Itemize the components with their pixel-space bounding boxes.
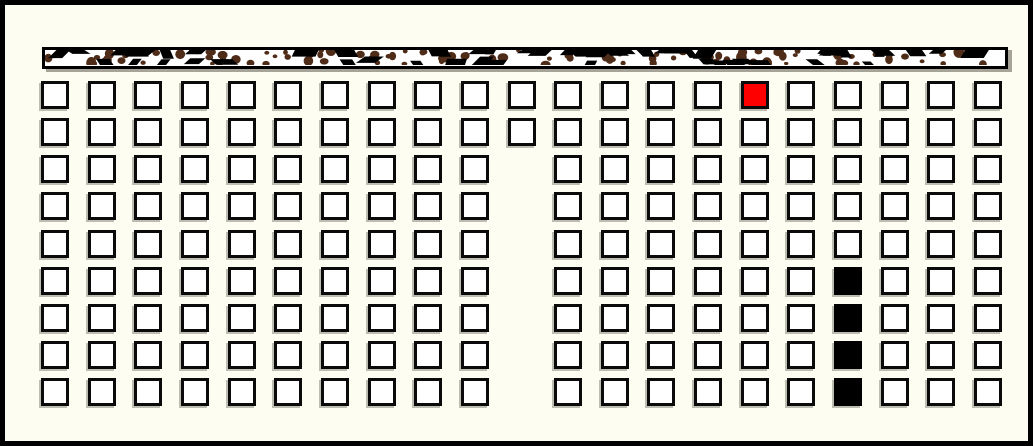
grid-cell[interactable] [927, 341, 955, 369]
grid-cell[interactable] [787, 81, 815, 109]
grid-cell[interactable] [741, 378, 769, 406]
grid-cell[interactable] [41, 304, 69, 332]
grid-cell[interactable] [554, 118, 582, 146]
grid-cell[interactable] [554, 267, 582, 295]
grid-cell[interactable] [228, 341, 256, 369]
grid-cell[interactable] [647, 378, 675, 406]
grid-cell[interactable] [461, 304, 489, 332]
textured-top-bar [42, 47, 1008, 69]
grid-cell[interactable] [647, 192, 675, 220]
grid-cell[interactable] [974, 118, 1002, 146]
grid-cell[interactable] [134, 341, 162, 369]
grid-cell[interactable] [414, 118, 442, 146]
grid-cell[interactable] [461, 267, 489, 295]
grid-cell[interactable] [134, 267, 162, 295]
grid-cell[interactable] [694, 118, 722, 146]
grid-cell[interactable] [601, 230, 629, 258]
grid-cell[interactable] [88, 378, 116, 406]
grid-cell[interactable] [787, 304, 815, 332]
grid-cell[interactable] [88, 155, 116, 183]
grid-cell[interactable] [694, 267, 722, 295]
grid-cell[interactable] [694, 192, 722, 220]
grid-cell[interactable] [228, 118, 256, 146]
grid-cell[interactable] [927, 230, 955, 258]
grid-cell[interactable] [881, 192, 909, 220]
grid-cell[interactable] [41, 267, 69, 295]
grid-cell[interactable] [414, 230, 442, 258]
grid-cell[interactable] [974, 81, 1002, 109]
grid-cell[interactable] [554, 304, 582, 332]
grid-cell[interactable] [927, 304, 955, 332]
grid-cell[interactable] [881, 267, 909, 295]
grid-cell-black[interactable] [834, 267, 862, 295]
grid-cell[interactable] [974, 155, 1002, 183]
grid-cell[interactable] [321, 230, 349, 258]
grid-cell[interactable] [554, 230, 582, 258]
grid-cell[interactable] [787, 230, 815, 258]
grid-cell[interactable] [228, 304, 256, 332]
grid-cell[interactable] [274, 192, 302, 220]
grid-cell[interactable] [414, 81, 442, 109]
grid-cell[interactable] [228, 192, 256, 220]
grid-cell[interactable] [368, 230, 396, 258]
grid-cell[interactable] [834, 192, 862, 220]
grid-cell[interactable] [88, 81, 116, 109]
grid-cell[interactable] [787, 341, 815, 369]
grid-cell[interactable] [461, 118, 489, 146]
grid-cell[interactable] [274, 341, 302, 369]
grid-cell[interactable] [974, 304, 1002, 332]
grid-cell[interactable] [321, 378, 349, 406]
grid-cell[interactable] [88, 230, 116, 258]
grid-cell[interactable] [228, 378, 256, 406]
grid-cell[interactable] [41, 81, 69, 109]
grid-cell[interactable] [181, 81, 209, 109]
grid-cell[interactable] [787, 378, 815, 406]
grid-cell[interactable] [601, 192, 629, 220]
grid-cell[interactable] [274, 155, 302, 183]
grid-cell[interactable] [647, 267, 675, 295]
grid-cell[interactable] [134, 155, 162, 183]
grid-cell[interactable] [181, 155, 209, 183]
grid-cell[interactable] [368, 304, 396, 332]
grid-cell[interactable] [554, 155, 582, 183]
grid-cell-black[interactable] [834, 378, 862, 406]
grid-cell[interactable] [181, 341, 209, 369]
grid-cell[interactable] [834, 118, 862, 146]
grid-cell[interactable] [647, 230, 675, 258]
grid-cell[interactable] [321, 304, 349, 332]
grid-cell[interactable] [974, 230, 1002, 258]
grid-cell[interactable] [741, 304, 769, 332]
grid-cell[interactable] [647, 118, 675, 146]
grid-cell[interactable] [694, 230, 722, 258]
grid-cell[interactable] [741, 230, 769, 258]
grid-cell[interactable] [228, 81, 256, 109]
grid-cell[interactable] [508, 81, 536, 109]
grid-cell[interactable] [554, 341, 582, 369]
noise-pattern [45, 50, 1004, 65]
grid-cell[interactable] [368, 155, 396, 183]
grid-cell[interactable] [274, 267, 302, 295]
grid-cell-red[interactable] [741, 81, 769, 109]
grid-cell[interactable] [927, 81, 955, 109]
grid-cell[interactable] [741, 192, 769, 220]
grid-cell[interactable] [974, 192, 1002, 220]
grid-cell[interactable] [461, 341, 489, 369]
grid-cell[interactable] [134, 118, 162, 146]
grid-cell[interactable] [368, 378, 396, 406]
grid-cell[interactable] [927, 155, 955, 183]
grid-cell[interactable] [88, 304, 116, 332]
grid-cell[interactable] [414, 267, 442, 295]
grid-cell[interactable] [274, 304, 302, 332]
grid-cell[interactable] [647, 81, 675, 109]
grid-cell[interactable] [601, 267, 629, 295]
grid-cell[interactable] [414, 304, 442, 332]
grid-cell[interactable] [181, 118, 209, 146]
grid-cell[interactable] [368, 192, 396, 220]
grid-cell[interactable] [787, 155, 815, 183]
grid-cell[interactable] [787, 267, 815, 295]
grid-cell[interactable] [134, 81, 162, 109]
grid-cell[interactable] [787, 192, 815, 220]
grid-cell[interactable] [368, 267, 396, 295]
grid-cell[interactable] [461, 230, 489, 258]
grid-cell[interactable] [834, 81, 862, 109]
grid-cell[interactable] [321, 118, 349, 146]
grid-cell[interactable] [508, 118, 536, 146]
grid-cell[interactable] [414, 341, 442, 369]
grid-cell[interactable] [694, 81, 722, 109]
grid-cell[interactable] [927, 118, 955, 146]
grid-cell[interactable] [601, 118, 629, 146]
grid-cell[interactable] [321, 267, 349, 295]
grid-cell[interactable] [41, 118, 69, 146]
grid-cell[interactable] [647, 155, 675, 183]
grid-cell[interactable] [228, 267, 256, 295]
grid-cell[interactable] [461, 192, 489, 220]
grid-cell[interactable] [741, 118, 769, 146]
grid-cell[interactable] [461, 81, 489, 109]
grid-cell[interactable] [647, 341, 675, 369]
grid-cell[interactable] [41, 230, 69, 258]
grid-cell[interactable] [601, 304, 629, 332]
grid-cell[interactable] [228, 230, 256, 258]
grid-cell[interactable] [414, 378, 442, 406]
grid-cell[interactable] [741, 155, 769, 183]
grid-cell[interactable] [601, 378, 629, 406]
grid-cell[interactable] [881, 230, 909, 258]
grid-cell[interactable] [694, 155, 722, 183]
grid-cell[interactable] [694, 341, 722, 369]
grid-cell[interactable] [88, 118, 116, 146]
grid-cell[interactable] [414, 192, 442, 220]
grid-cell[interactable] [181, 267, 209, 295]
grid-cell[interactable] [554, 81, 582, 109]
grid-cell[interactable] [181, 192, 209, 220]
grid-cell[interactable] [134, 304, 162, 332]
grid-cell[interactable] [461, 155, 489, 183]
grid-cell[interactable] [974, 378, 1002, 406]
grid-cell[interactable] [554, 192, 582, 220]
grid-cell[interactable] [228, 155, 256, 183]
grid-cell[interactable] [787, 118, 815, 146]
grid-cell[interactable] [321, 155, 349, 183]
grid-cell[interactable] [927, 192, 955, 220]
grid-cell[interactable] [321, 81, 349, 109]
grid-cell[interactable] [927, 378, 955, 406]
grid-cell[interactable] [181, 230, 209, 258]
grid-cell[interactable] [321, 341, 349, 369]
grid-cell[interactable] [88, 341, 116, 369]
grid-cell[interactable] [41, 341, 69, 369]
grid-cell[interactable] [88, 192, 116, 220]
grid-cell[interactable] [694, 378, 722, 406]
grid-cell[interactable] [927, 267, 955, 295]
grid-cell[interactable] [461, 378, 489, 406]
grid-cell[interactable] [414, 155, 442, 183]
grid-cell[interactable] [368, 118, 396, 146]
grid-cell[interactable] [368, 341, 396, 369]
grid-cell-black[interactable] [834, 304, 862, 332]
grid-cell[interactable] [834, 155, 862, 183]
app-canvas [0, 0, 1033, 446]
grid-cell[interactable] [601, 341, 629, 369]
grid-cell[interactable] [694, 304, 722, 332]
grid-cell[interactable] [134, 192, 162, 220]
grid-cell[interactable] [134, 230, 162, 258]
grid-cell[interactable] [647, 304, 675, 332]
grid-cell[interactable] [974, 341, 1002, 369]
grid-cell[interactable] [881, 341, 909, 369]
grid-cell[interactable] [321, 192, 349, 220]
grid-cell[interactable] [181, 304, 209, 332]
grid-cell[interactable] [601, 155, 629, 183]
grid-cell[interactable] [181, 378, 209, 406]
grid-cell[interactable] [881, 378, 909, 406]
grid-cell[interactable] [881, 81, 909, 109]
grid-cell[interactable] [881, 118, 909, 146]
grid-cell[interactable] [554, 378, 582, 406]
grid-cell[interactable] [741, 267, 769, 295]
grid-cell[interactable] [274, 378, 302, 406]
grid-cell[interactable] [881, 304, 909, 332]
grid-cell[interactable] [601, 81, 629, 109]
grid-cell[interactable] [41, 378, 69, 406]
grid-cell[interactable] [41, 155, 69, 183]
grid-cell-black[interactable] [834, 341, 862, 369]
grid-cell[interactable] [974, 267, 1002, 295]
grid-cell[interactable] [881, 155, 909, 183]
grid-cell[interactable] [274, 230, 302, 258]
grid-cell[interactable] [368, 81, 396, 109]
grid-cell[interactable] [274, 81, 302, 109]
grid-cell[interactable] [274, 118, 302, 146]
grid-cell[interactable] [134, 378, 162, 406]
grid-cell[interactable] [41, 192, 69, 220]
grid-cell[interactable] [834, 230, 862, 258]
grid-cell[interactable] [741, 341, 769, 369]
grid-cell[interactable] [88, 267, 116, 295]
